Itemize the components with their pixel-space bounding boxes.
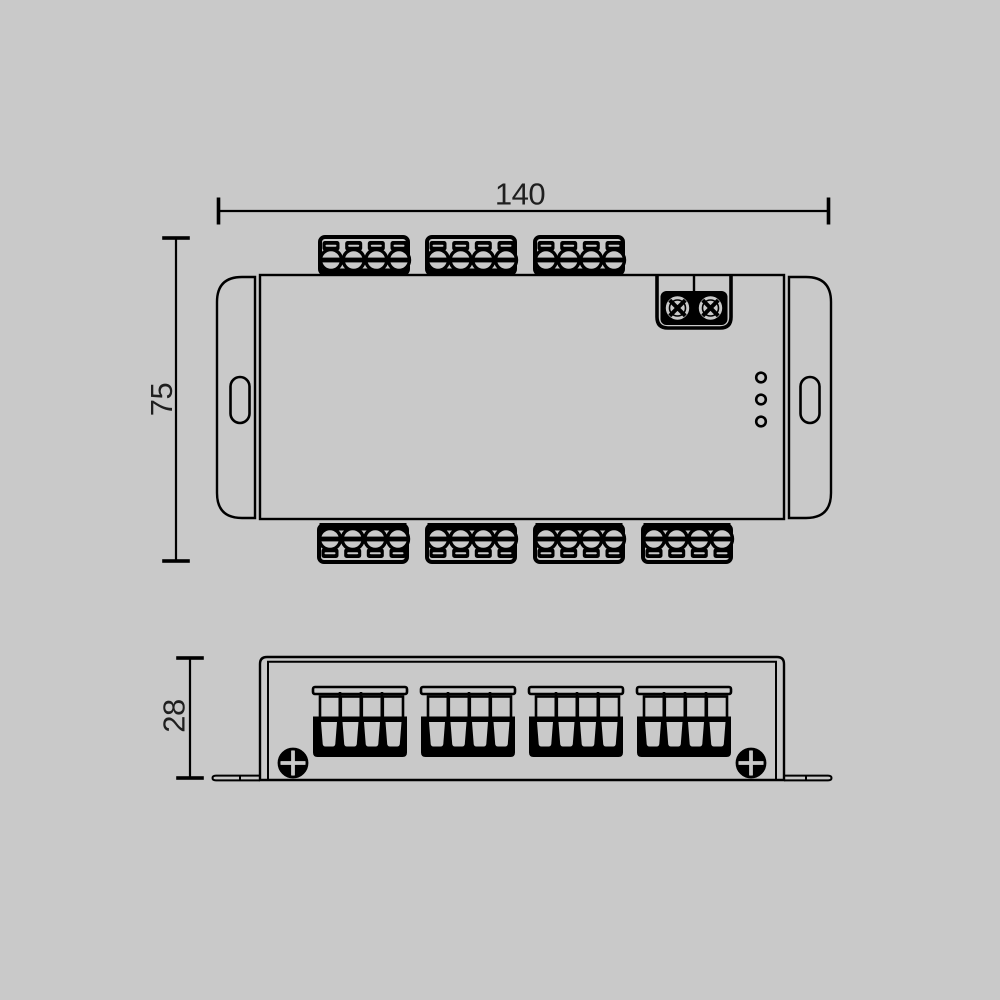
led-indicator (756, 395, 766, 405)
terminal-block-top (427, 237, 518, 276)
width-dimension: 140 (217, 177, 831, 225)
terminal-block-bottom (643, 523, 734, 562)
front-terminal-block (637, 687, 731, 757)
dimension-tick (162, 559, 190, 563)
chassis-screw-left (279, 749, 307, 777)
front-terminal-block (421, 687, 515, 757)
terminal-block-bottom (427, 523, 518, 562)
drawing-canvas: 140 75 28 (0, 0, 1000, 1000)
terminal-block-bottom (535, 523, 626, 562)
dimension-tick (162, 236, 190, 240)
technical-drawing: 140 75 28 (0, 0, 1000, 1000)
terminal-block-top (535, 237, 626, 276)
mounting-slot-right (801, 377, 820, 423)
dimension-tick (176, 776, 204, 780)
dimension-tick (217, 198, 221, 225)
power-terminal (657, 276, 731, 328)
mounting-slot-left (231, 377, 250, 423)
dimension-tick (827, 198, 831, 225)
mounting-foot-left (213, 776, 261, 781)
height-dimension: 75 (144, 236, 190, 563)
led-indicator (756, 373, 766, 383)
dimension-tick (176, 656, 204, 660)
depth-dimension: 28 (157, 656, 204, 780)
terminal-block-bottom (319, 523, 410, 562)
chassis-screw-right (737, 749, 765, 777)
mounting-ear-right (789, 277, 831, 518)
dimension-label-height: 75 (144, 383, 179, 416)
led-indicator (756, 417, 766, 427)
mounting-foot-right (784, 776, 832, 781)
front-terminal-block (313, 687, 407, 757)
front-terminal-block (529, 687, 623, 757)
power-screw (664, 295, 690, 321)
power-screw (697, 295, 723, 321)
dimension-label-depth: 28 (157, 699, 192, 732)
dimension-label-width: 140 (495, 177, 545, 212)
top-view (217, 237, 831, 562)
terminal-block-top (320, 237, 411, 276)
front-view (213, 657, 832, 780)
